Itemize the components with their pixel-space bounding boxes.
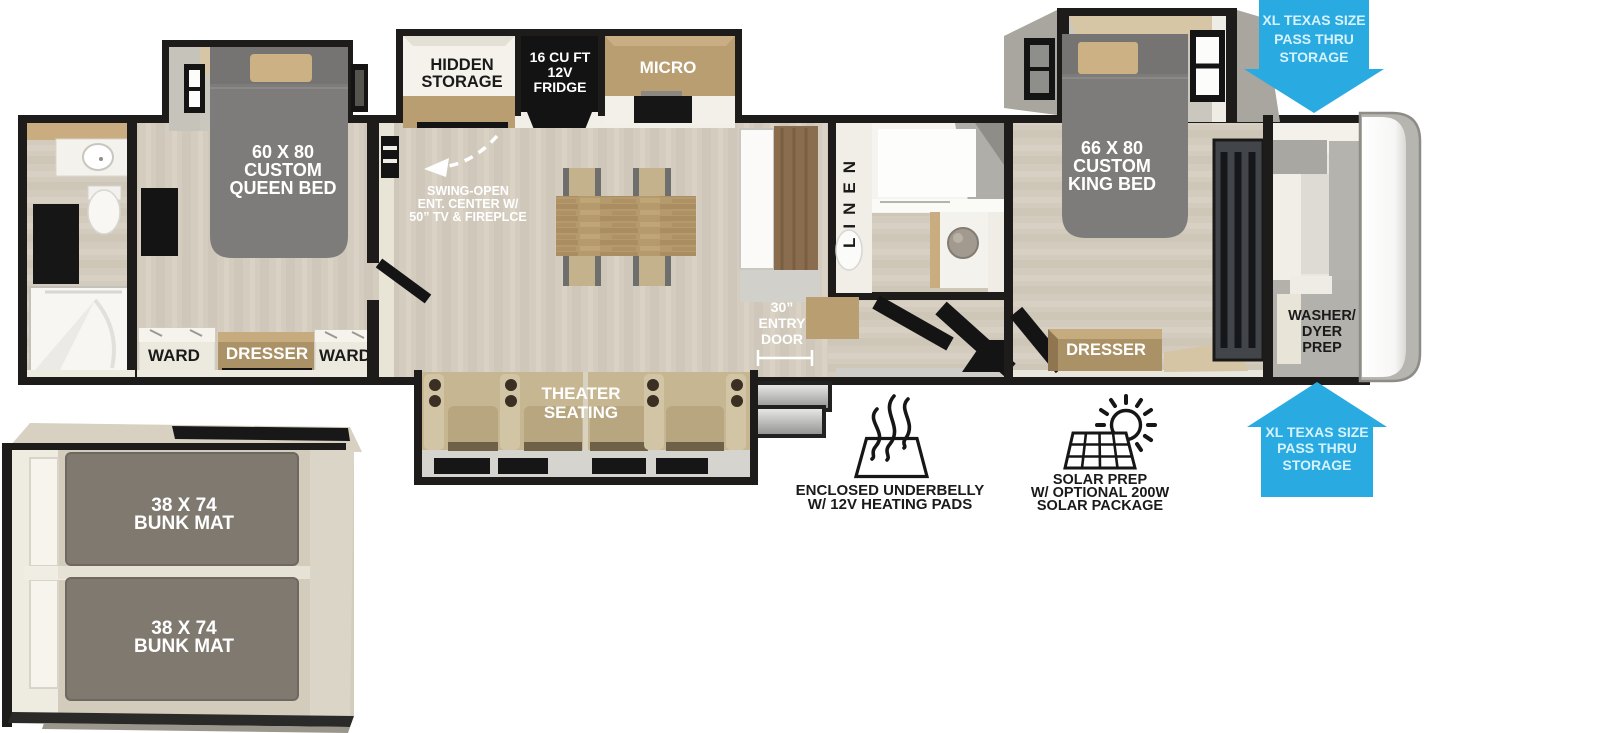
svg-text:CUSTOM: CUSTOM — [1073, 156, 1151, 176]
svg-text:DYER: DYER — [1302, 324, 1343, 340]
svg-text:WARD: WARD — [319, 346, 371, 365]
svg-text:DRESSER: DRESSER — [226, 344, 308, 363]
svg-text:SOLAR PACKAGE: SOLAR PACKAGE — [1037, 498, 1164, 514]
svg-text:ENT. CENTER W/: ENT. CENTER W/ — [418, 197, 519, 211]
svg-text:12V: 12V — [548, 64, 574, 80]
svg-text:W/ 12V HEATING PADS: W/ 12V HEATING PADS — [808, 496, 972, 513]
svg-text:STORAGE: STORAGE — [421, 73, 502, 91]
svg-text:STORAGE: STORAGE — [1280, 49, 1349, 65]
svg-text:16 CU FT: 16 CU FT — [530, 49, 591, 65]
svg-text:XL TEXAS SIZE: XL TEXAS SIZE — [1262, 12, 1365, 28]
svg-text:QUEEN BED: QUEEN BED — [229, 178, 336, 198]
svg-text:MICRO: MICRO — [640, 58, 697, 77]
svg-text:50” TV & FIREPLCE: 50” TV & FIREPLCE — [409, 210, 526, 224]
svg-text:KING BED: KING BED — [1068, 174, 1156, 194]
svg-text:SEATING: SEATING — [544, 403, 618, 422]
svg-text:60 X 80: 60 X 80 — [252, 142, 314, 162]
svg-text:LINEN: LINEN — [840, 152, 859, 248]
svg-text:66 X 80: 66 X 80 — [1081, 138, 1143, 158]
svg-text:THEATER: THEATER — [541, 384, 620, 403]
svg-text:BUNK MAT: BUNK MAT — [134, 636, 234, 657]
svg-text:30”: 30” — [771, 299, 794, 315]
svg-text:STORAGE: STORAGE — [1283, 457, 1352, 473]
svg-text:PASS THRU: PASS THRU — [1274, 31, 1354, 47]
svg-text:DRESSER: DRESSER — [1066, 341, 1146, 359]
svg-text:BUNK MAT: BUNK MAT — [134, 513, 234, 534]
svg-text:ENTRY: ENTRY — [759, 315, 807, 331]
svg-text:CUSTOM: CUSTOM — [244, 160, 322, 180]
svg-text:FRIDGE: FRIDGE — [534, 79, 587, 95]
svg-text:PASS THRU: PASS THRU — [1277, 440, 1357, 456]
svg-text:SWING-OPEN: SWING-OPEN — [427, 184, 509, 198]
svg-text:WASHER/: WASHER/ — [1288, 308, 1356, 324]
svg-text:HIDDEN: HIDDEN — [430, 56, 493, 74]
svg-text:DOOR: DOOR — [761, 331, 803, 347]
svg-text:WARD: WARD — [148, 346, 200, 365]
svg-text:XL TEXAS SIZE: XL TEXAS SIZE — [1265, 424, 1368, 440]
svg-text:PREP: PREP — [1302, 340, 1342, 356]
